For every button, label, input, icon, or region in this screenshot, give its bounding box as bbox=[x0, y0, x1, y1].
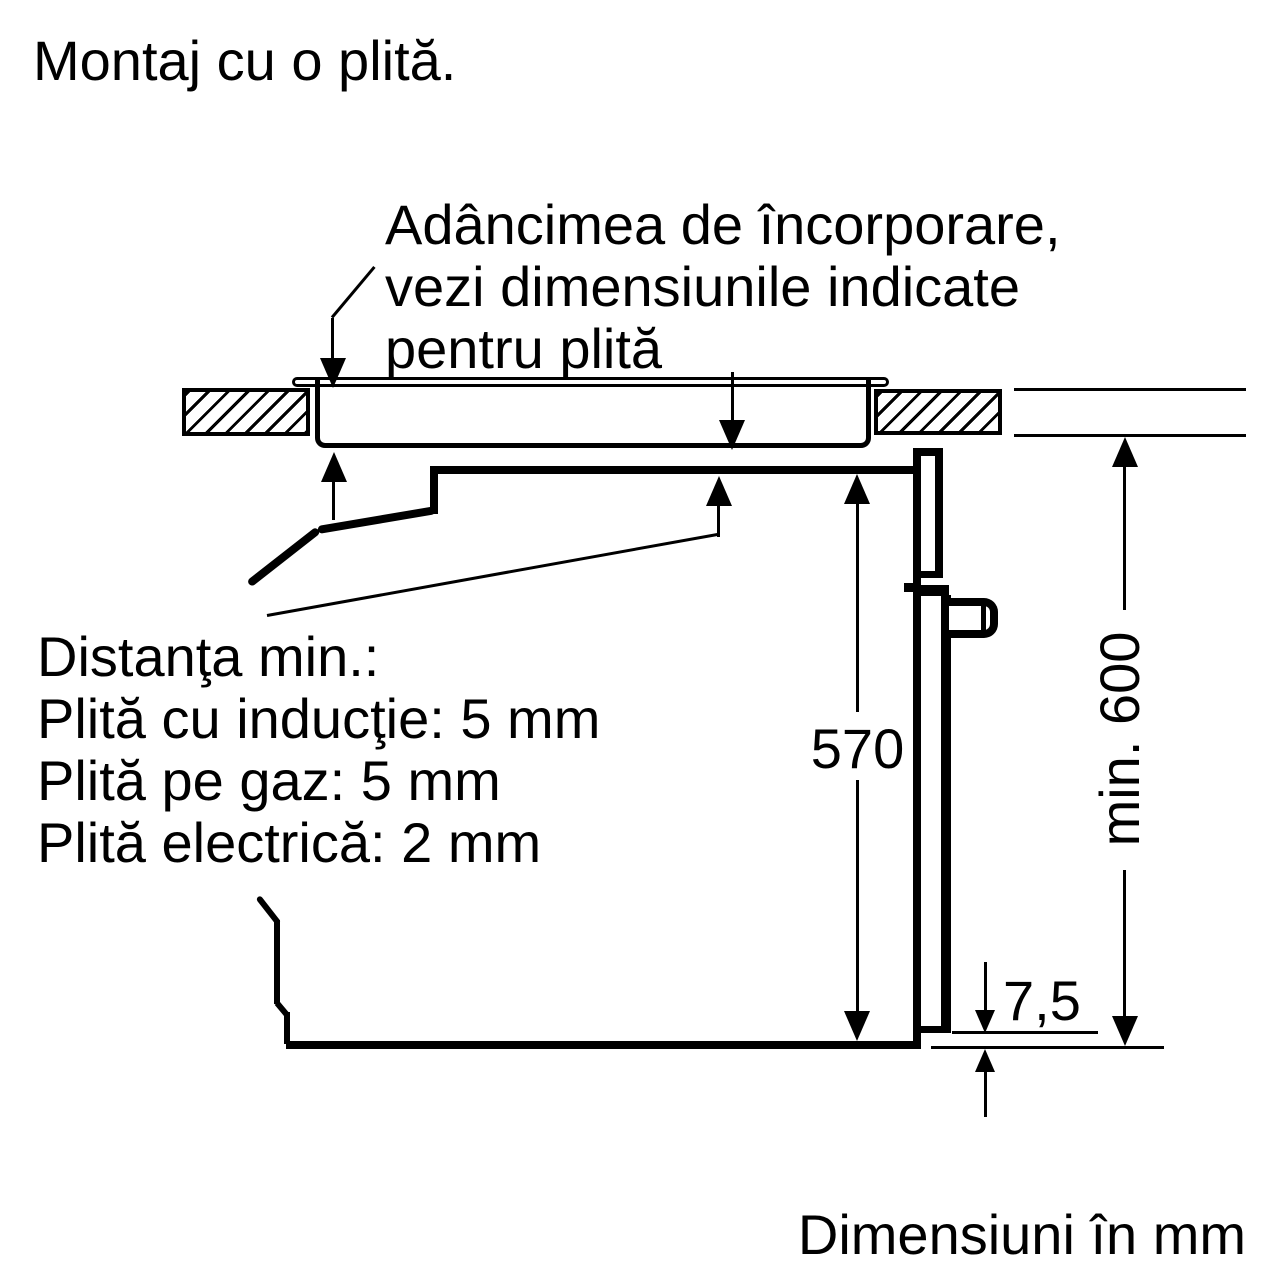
dim-600-line-upper bbox=[1123, 465, 1126, 610]
distance-annotation-line2: Plită cu inducţie: 5 mm bbox=[37, 688, 600, 750]
oven-front-right-edge-upper bbox=[935, 448, 943, 572]
oven-top-break-edge bbox=[247, 527, 321, 587]
dim-75-down-arrow-icon bbox=[975, 1010, 995, 1033]
depth-annotation-line1: Adâncimea de încorporare, bbox=[385, 194, 1061, 256]
depth-annotation: Adâncimea de încorporare, vezi dimensiun… bbox=[385, 194, 1061, 380]
hob-body bbox=[315, 380, 871, 448]
depth-annotation-line3: pentru plită bbox=[385, 318, 1061, 380]
worktop-top-extension-line bbox=[1014, 388, 1246, 391]
oven-door-bottom-step bbox=[913, 1026, 921, 1049]
oven-front-right-edge-lower bbox=[941, 595, 951, 1032]
distance-annotation-line3: Plită pe gaz: 5 mm bbox=[37, 750, 600, 812]
dim-570-line-lower bbox=[856, 780, 859, 1014]
cabinet-bottom-reference-line bbox=[931, 1046, 1164, 1049]
dim-600-top-arrow-icon bbox=[1112, 437, 1138, 467]
worktop-right-section bbox=[874, 389, 1002, 435]
oven-left-line bbox=[274, 920, 280, 1004]
oven-front-joint-jog bbox=[920, 571, 943, 578]
distance-annotation-line4: Plită electrică: 2 mm bbox=[37, 812, 600, 874]
depth-annotation-line2: vezi dimensiunile indicate bbox=[385, 256, 1061, 318]
dim-570-line-upper bbox=[856, 500, 859, 712]
cabinet-bottom-line bbox=[286, 1041, 920, 1049]
gap-arrow-up-hob-icon bbox=[321, 452, 347, 482]
installation-diagram: Montaj cu o plită. Adâncimea de încorpor… bbox=[0, 0, 1280, 1280]
control-knob bbox=[949, 598, 998, 638]
dim-75-up-shaft bbox=[984, 1069, 987, 1117]
units-note: Dimensiuni în mm bbox=[740, 1204, 1246, 1266]
depth-leader-diagonal bbox=[331, 266, 376, 318]
hob-depth-arrow-down-icon bbox=[719, 420, 745, 450]
distance-leader-diagonal bbox=[267, 533, 719, 617]
dim-570-label: 570 bbox=[800, 718, 915, 780]
distance-annotation-line1: Distanţa min.: bbox=[37, 626, 600, 688]
dim-75-label: 7,5 bbox=[1003, 970, 1081, 1032]
depth-arrow-down-icon bbox=[320, 358, 346, 388]
dim-600-label: min. 600 bbox=[1089, 619, 1147, 859]
worktop-left-section bbox=[182, 388, 310, 436]
dim-600-bottom-arrow-icon bbox=[1112, 1016, 1138, 1046]
control-knob-inner-line bbox=[981, 606, 986, 631]
dim-600-line-lower bbox=[1123, 870, 1126, 1018]
gap-arrow-up-hob-shaft bbox=[332, 480, 335, 520]
dim-75-down-shaft bbox=[984, 962, 987, 1014]
oven-top-slope bbox=[317, 506, 436, 534]
oven-top-line bbox=[430, 466, 919, 474]
gap-arrow-up-oven-icon bbox=[706, 476, 732, 506]
distance-annotation: Distanţa min.: Plită cu inducţie: 5 mm P… bbox=[37, 626, 600, 874]
page-title: Montaj cu o plită. bbox=[33, 30, 456, 92]
oven-left-line-lower bbox=[284, 1012, 290, 1044]
dim-570-bottom-arrow-icon bbox=[844, 1011, 870, 1041]
depth-arrow-shaft bbox=[331, 318, 334, 362]
